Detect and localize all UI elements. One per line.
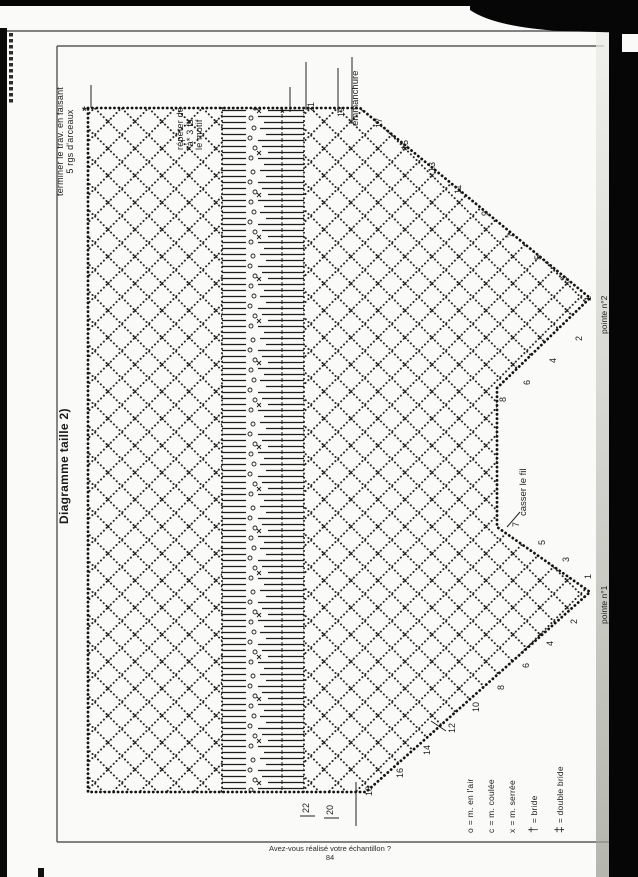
double-crochet-icon: †: [529, 826, 537, 833]
legend-item: ‡= double bride: [555, 766, 565, 833]
finishing-note-line2: 5 rgs d'arceaux: [66, 87, 76, 196]
legend-label: = m. serrée: [507, 780, 517, 825]
row-number: 13: [428, 162, 438, 172]
row-number: 20: [326, 805, 336, 815]
crochet-chart: [0, 0, 638, 877]
row-number: 6: [523, 380, 533, 385]
single-crochet-icon: x: [508, 829, 517, 833]
row-number: 4: [546, 641, 556, 646]
row-number: 19: [337, 107, 347, 117]
footer-question: Avez-vous réalisé votre échantillon ?: [230, 844, 430, 853]
repeat-note-line3: le motif: [195, 107, 205, 150]
row-number: 12: [448, 723, 458, 733]
row-number: 22: [302, 803, 312, 813]
row-number: 10: [472, 702, 482, 712]
row-number: 6: [522, 663, 532, 668]
row-number: 11: [454, 185, 464, 194]
row-number: 14: [423, 745, 433, 755]
legend-label: = double bride: [555, 766, 565, 823]
legend-item: c= m. coulée: [487, 779, 496, 833]
mesh-lattice: [88, 108, 590, 792]
chain-stitch-icon: o: [466, 828, 475, 833]
row-number: 18: [365, 786, 375, 796]
row-number: 8: [497, 685, 507, 690]
slip-stitch-icon: c: [487, 829, 496, 833]
row-number: 9: [481, 211, 491, 216]
page-number: 84: [320, 853, 340, 862]
row-number: 2: [575, 336, 585, 341]
repeat-star-right: *: [280, 106, 285, 120]
treble-crochet-icon: ‡: [555, 826, 563, 833]
legend-label: = m. coulée: [486, 779, 496, 825]
row-number: 7: [507, 233, 517, 238]
row-number: 5: [534, 255, 544, 260]
row-number: 17: [375, 118, 385, 128]
legend-item: o= m. en l'air: [466, 779, 475, 833]
row-number: 7: [512, 522, 522, 527]
legend-item: x= m. serrée: [508, 780, 517, 833]
diagram-title: Diagramme taille 2): [58, 408, 71, 524]
legend-label: = m. en l'air: [465, 779, 475, 826]
motif-band: [222, 108, 304, 792]
scanned-book-page: terminer le trav. en faisant 5 rgs d'arc…: [0, 0, 638, 877]
legend-label: = bride: [529, 795, 539, 823]
row-number: 8: [499, 397, 509, 402]
row-number: 3: [560, 276, 570, 281]
repeat-star-left: *: [82, 104, 87, 118]
cut-thread-label: casser le fil: [519, 468, 529, 516]
binding-perforation: [9, 33, 13, 103]
point1-label: pointe n°1: [600, 586, 609, 624]
row-number: 4: [549, 358, 559, 363]
finishing-note: terminer le trav. en faisant 5 rgs d'arc…: [56, 87, 75, 196]
row-number: 15: [401, 140, 411, 150]
row-number: 1: [584, 574, 594, 579]
row-number: 1: [584, 296, 594, 301]
point2-label: pointe n°2: [600, 296, 609, 334]
armhole-label: emmanchure: [351, 71, 361, 126]
row-number: 5: [538, 540, 548, 545]
row-number: 16: [396, 768, 406, 778]
row-number: 21: [307, 102, 317, 112]
row-number: 3: [562, 557, 572, 562]
row-number: 2: [570, 619, 580, 624]
repeat-note: répéter de *à* 3 fs le motif: [176, 107, 205, 150]
legend-item: †= bride: [529, 795, 539, 833]
